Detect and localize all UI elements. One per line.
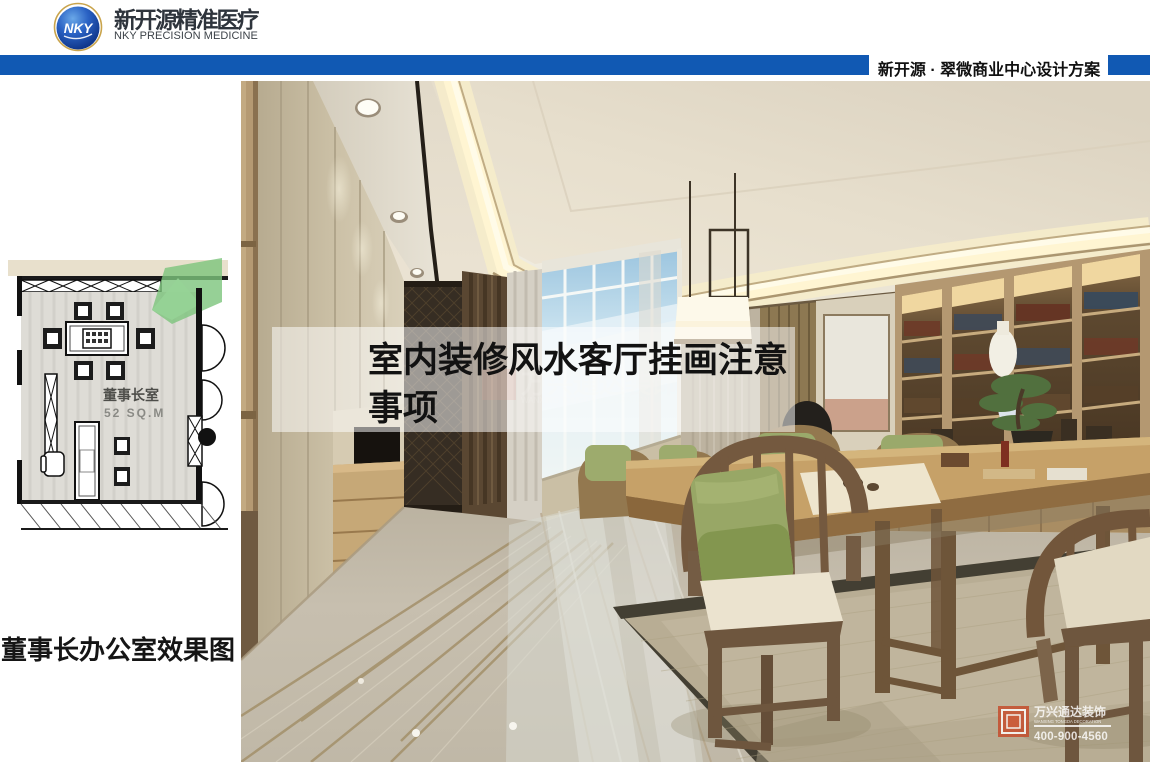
svg-text:NKY: NKY bbox=[64, 21, 94, 36]
svg-text:董事长室: 董事长室 bbox=[103, 387, 159, 403]
svg-text:万兴通达装饰: 万兴通达装饰 bbox=[1033, 704, 1106, 719]
svg-text:WANXING TONGDA DECORATION: WANXING TONGDA DECORATION bbox=[1034, 719, 1101, 724]
svg-text:52 SQ.M: 52 SQ.M bbox=[104, 406, 165, 420]
svg-text:400-900-4560: 400-900-4560 bbox=[1034, 731, 1108, 743]
